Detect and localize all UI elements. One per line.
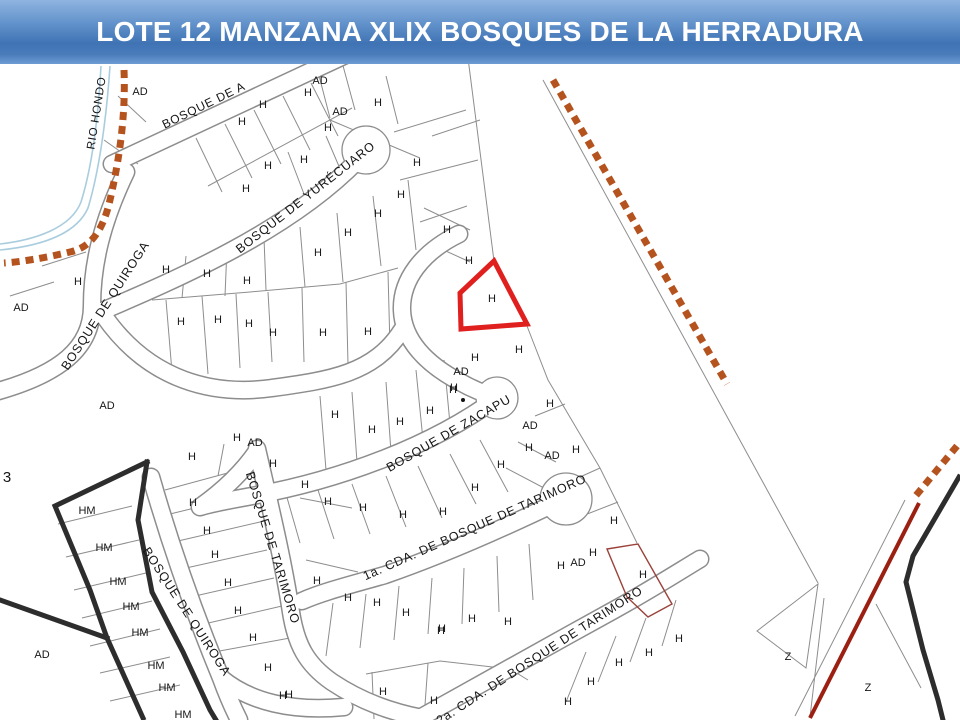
lot-marker: HM xyxy=(122,601,139,613)
lot-marker: HM xyxy=(109,576,126,588)
lot-marker: H xyxy=(189,497,197,509)
lot-marker: H xyxy=(426,405,434,417)
lot-marker: H xyxy=(572,444,580,456)
lot-marker: H xyxy=(443,224,451,236)
lot-marker: H xyxy=(488,293,496,305)
lot-marker: H xyxy=(413,157,421,169)
lot-marker: H xyxy=(396,416,404,428)
lot-marker: H xyxy=(610,515,618,527)
lot-marker: H xyxy=(324,122,332,134)
lot-marker: HM xyxy=(147,660,164,672)
lot-marker: H xyxy=(301,479,309,491)
lot-marker: H xyxy=(615,657,623,669)
lot-marker: HM xyxy=(174,709,191,720)
lot-marker: H xyxy=(74,276,82,288)
lot-marker: H xyxy=(300,154,308,166)
lot-marker: H xyxy=(344,227,352,239)
lot-marker: H xyxy=(344,592,352,604)
lot-marker: H xyxy=(234,605,242,617)
lot-marker: Z xyxy=(865,682,872,694)
lot-marker: Z xyxy=(785,651,792,663)
lot-marker: H xyxy=(162,264,170,276)
slide-title: LOTE 12 MANZANA XLIX BOSQUES DE LA HERRA… xyxy=(96,16,863,48)
lot-marker: H xyxy=(546,398,554,410)
lot-marker: H xyxy=(269,458,277,470)
lot-marker: H xyxy=(465,255,473,267)
lot-marker: AD xyxy=(453,366,468,378)
lot-marker: H xyxy=(368,424,376,436)
lot-marker: H xyxy=(224,577,232,589)
lot-marker: H xyxy=(211,549,219,561)
lot-marker: H xyxy=(259,99,267,111)
lot-marker: H xyxy=(269,327,277,339)
lot-marker: AD xyxy=(34,649,49,661)
lot-marker: H xyxy=(450,382,458,394)
lot-marker: H xyxy=(471,352,479,364)
lot-marker: HM xyxy=(78,505,95,517)
lot-marker: H xyxy=(203,525,211,537)
plat-map: RIO HONDOBOSQUE DE ABOSQUE DE YURÉCUAROB… xyxy=(0,0,960,720)
lot-marker: H xyxy=(430,695,438,707)
lot-marker: H xyxy=(379,686,387,698)
lot-marker: H xyxy=(557,560,565,572)
lot-marker: 3 xyxy=(3,469,11,486)
lot-marker: H xyxy=(264,662,272,674)
lot-marker: H xyxy=(233,432,241,444)
lot-marker: H xyxy=(214,314,222,326)
lot-marker: H xyxy=(242,183,250,195)
lot-marker: HM xyxy=(131,627,148,639)
lot-marker: AD xyxy=(544,450,559,462)
lot-marker: H xyxy=(374,97,382,109)
lot-marker: H xyxy=(243,275,251,287)
lot-marker: H xyxy=(468,613,476,625)
lot-marker: HM xyxy=(158,682,175,694)
lot-marker: H xyxy=(589,547,597,559)
lot-marker: H xyxy=(525,442,533,454)
lot-marker: H xyxy=(374,208,382,220)
lot-marker: AD xyxy=(312,75,327,87)
lot-marker: H xyxy=(471,482,479,494)
lot-marker: HM xyxy=(95,542,112,554)
lot-marker: H xyxy=(304,87,312,99)
lot-marker: H xyxy=(188,451,196,463)
lot-marker: AD xyxy=(247,437,262,449)
lot-marker: H xyxy=(285,689,293,701)
lot-marker: H xyxy=(675,633,683,645)
lot-marker: H xyxy=(564,696,572,708)
lot-marker: H xyxy=(177,316,185,328)
lot-marker: AD xyxy=(13,302,28,314)
lot-marker: H xyxy=(319,327,327,339)
lot-marker: H xyxy=(439,506,447,518)
lot-marker: H xyxy=(497,459,505,471)
lot-marker: H xyxy=(331,409,339,421)
lot-marker: H xyxy=(397,189,405,201)
lot-marker: H xyxy=(515,344,523,356)
lot-marker: H xyxy=(504,616,512,628)
lot-marker: AD xyxy=(570,557,585,569)
lot-marker: H xyxy=(437,625,445,637)
lot-marker: H xyxy=(324,496,332,508)
dot-mark xyxy=(461,398,465,402)
lot-marker: H xyxy=(587,676,595,688)
lot-marker: H xyxy=(313,575,321,587)
lot-marker: H xyxy=(264,160,272,172)
title-banner: LOTE 12 MANZANA XLIX BOSQUES DE LA HERRA… xyxy=(0,0,960,64)
lot-marker: AD xyxy=(332,106,347,118)
lot-marker: AD xyxy=(522,420,537,432)
lot-marker: H xyxy=(402,607,410,619)
lot-marker: H xyxy=(364,326,372,338)
lot-marker: H xyxy=(359,502,367,514)
lot-marker: H xyxy=(203,268,211,280)
lot-marker: AD xyxy=(132,86,147,98)
lot-marker: AD xyxy=(99,400,114,412)
lot-marker: H xyxy=(645,647,653,659)
lot-marker: H xyxy=(245,318,253,330)
slide: RIO HONDOBOSQUE DE ABOSQUE DE YURÉCUAROB… xyxy=(0,0,960,720)
lot-marker: H xyxy=(639,569,647,581)
lot-marker: H xyxy=(373,597,381,609)
lot-marker: H xyxy=(249,632,257,644)
lot-marker: H xyxy=(314,247,322,259)
lot-marker: H xyxy=(399,509,407,521)
lot-marker: H xyxy=(238,116,246,128)
